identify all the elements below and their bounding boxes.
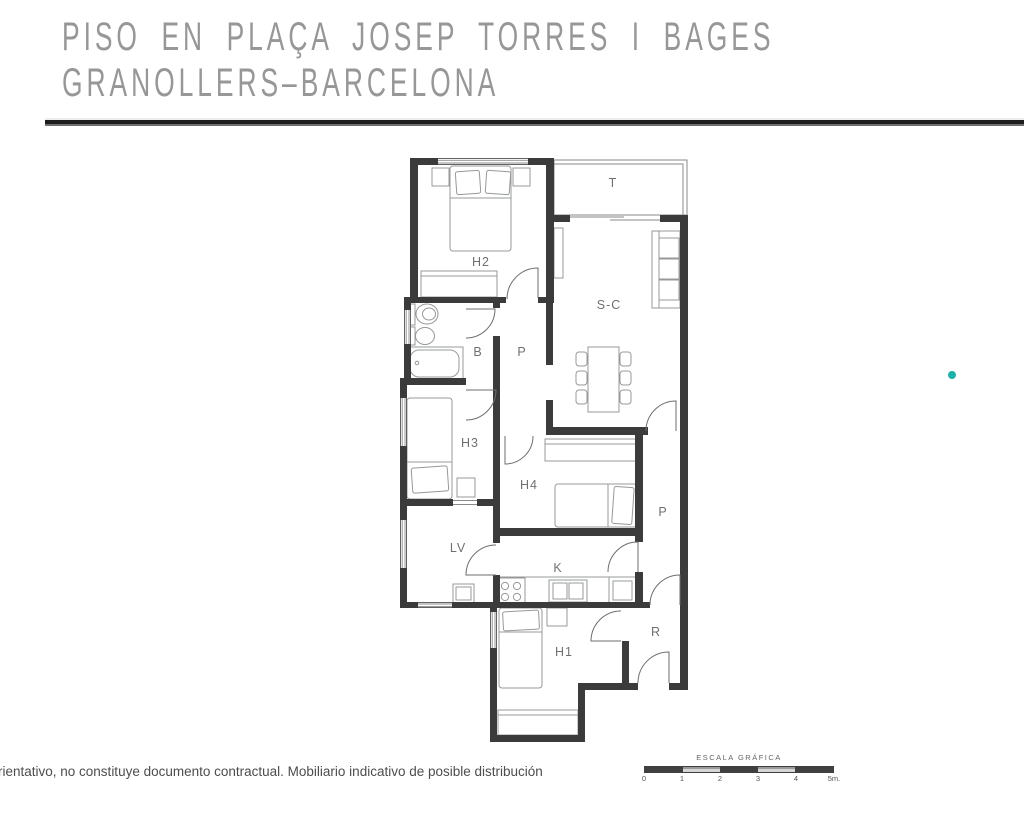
room-label-h3: H3	[461, 436, 479, 450]
dining-table-and-chairs	[576, 347, 631, 412]
room-label-living: S-C	[597, 298, 622, 312]
partition-h3-laundry	[453, 501, 477, 505]
toilet	[407, 304, 438, 325]
bathtub	[406, 347, 463, 380]
door-entry	[638, 652, 669, 683]
door-h4	[505, 436, 533, 464]
window-bathroom-left	[405, 310, 410, 344]
scale-segment	[720, 767, 758, 772]
room-label-entry-hall: R	[651, 625, 661, 639]
window-laundry-left	[401, 520, 406, 568]
room-label-patio: P	[658, 505, 667, 519]
scale-tick: 4	[794, 774, 798, 783]
door-h2	[507, 268, 538, 299]
scale-segment	[645, 767, 683, 772]
scale-tick: 5m.	[828, 774, 841, 783]
room-label-terrace: T	[609, 176, 618, 190]
wardrobe-h1	[498, 710, 578, 735]
wardrobe-h2	[421, 271, 497, 297]
sofa	[652, 231, 680, 308]
scale-bar-segments	[644, 766, 834, 773]
page: { "header": { "title_line1": "PISO EN PL…	[0, 0, 1024, 816]
room-label-h4: H4	[520, 478, 538, 492]
disclaimer-text: rientativo, no constituye documento cont…	[0, 764, 543, 779]
teal-marker-dot	[948, 371, 956, 379]
scale-bar: ESCALA GRÁFICA 0 1 2 3 4 5m.	[644, 753, 834, 785]
radiator-cabinet	[554, 228, 563, 278]
door-h3	[466, 390, 496, 420]
scale-tick: 1	[680, 774, 684, 783]
scale-tick: 0	[642, 774, 646, 783]
scale-tick: 2	[718, 774, 722, 783]
window-h2-top	[438, 159, 528, 164]
scale-segment	[758, 767, 796, 772]
window-h1-left	[491, 612, 496, 648]
scale-segment	[683, 767, 721, 772]
door-h1	[591, 611, 621, 641]
scale-bar-title: ESCALA GRÁFICA	[644, 753, 834, 762]
door-living	[646, 401, 676, 431]
single-bed-h4	[555, 484, 637, 527]
kitchen-counter	[495, 577, 643, 604]
bidet	[407, 327, 435, 345]
door-bathroom	[466, 309, 495, 338]
terrace-outline	[554, 160, 687, 220]
room-label-h2: H2	[472, 255, 490, 269]
scale-tick-labels: 0 1 2 3 4 5m.	[644, 774, 834, 785]
room-label-bathroom: B	[473, 345, 482, 359]
window-laundry-bottom	[418, 603, 452, 607]
scale-segment	[795, 767, 833, 772]
door-patio-hall	[650, 575, 680, 605]
room-label-laundry: LV	[450, 541, 466, 555]
washing-machine	[453, 584, 474, 603]
room-label-h1: H1	[555, 645, 573, 659]
floorplan-drawing: H2 T S-C B P H3 H4 P LV K H1 R	[0, 0, 1024, 816]
double-bed-h2	[432, 166, 530, 251]
stove	[497, 578, 525, 604]
wardrobe-h4	[545, 439, 637, 461]
window-h3-left	[401, 398, 406, 446]
scale-tick: 3	[756, 774, 760, 783]
door-kitchen	[608, 542, 638, 572]
room-label-hallway: P	[517, 345, 526, 359]
room-label-kitchen: K	[553, 561, 562, 575]
door-laundry	[466, 545, 496, 575]
